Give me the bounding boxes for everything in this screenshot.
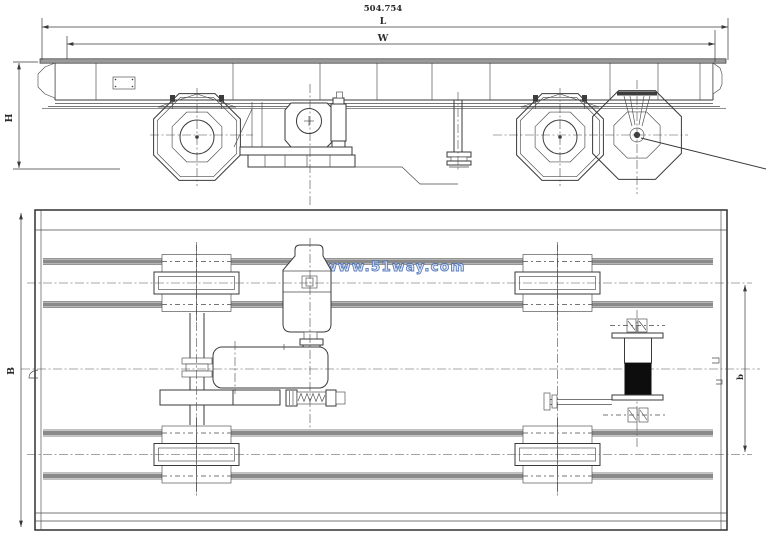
web-stiffeners: [96, 64, 700, 101]
gear-housing: [285, 103, 334, 147]
dimension-B: B: [6, 213, 21, 527]
dimension-total: 504.754: [364, 4, 403, 14]
inspection-plate: [113, 77, 135, 89]
breadth-label: B: [6, 367, 17, 375]
dimension-H: H: [4, 62, 120, 169]
guard-edge: [355, 167, 458, 184]
elevation-centerlines: [150, 80, 688, 207]
beam-end-cap-right: [713, 63, 722, 94]
engineering-drawing-canvas: 504.754 L W H: [0, 0, 769, 536]
section-mark-right: [712, 358, 722, 384]
watermark: www.51way.com: [324, 259, 465, 275]
trolley-frame: [35, 210, 727, 530]
top-flange: [40, 59, 726, 63]
hoist-mechanism: [234, 92, 458, 184]
travel-motor-plan: [213, 344, 328, 388]
dimension-W: W: [67, 30, 715, 62]
width-label: W: [377, 33, 389, 44]
beam-end-cap-left: [38, 63, 55, 98]
length-label: L: [380, 16, 387, 27]
gauge-label: b: [736, 374, 746, 380]
drum-rope-fill: [625, 363, 652, 395]
section-mark-left: [29, 370, 38, 378]
crane-trolley-drawing: 504.754 L W H: [0, 0, 769, 536]
leader-line: [641, 138, 766, 169]
dimension-b: b: [736, 285, 746, 452]
hook-suspension: [447, 100, 471, 167]
base-plate-upper: [240, 147, 352, 155]
plan-view: www.51way.com: [6, 210, 760, 530]
base-plate-lower: [248, 155, 355, 167]
limit-switch-cylinder: [331, 92, 346, 147]
height-label: H: [4, 113, 15, 122]
elevation-view: 504.754 L W H: [4, 4, 766, 207]
total-dimension-label: 504.754: [364, 4, 403, 14]
girder-beam: [38, 59, 726, 109]
hoist-body-plan: [283, 245, 331, 355]
